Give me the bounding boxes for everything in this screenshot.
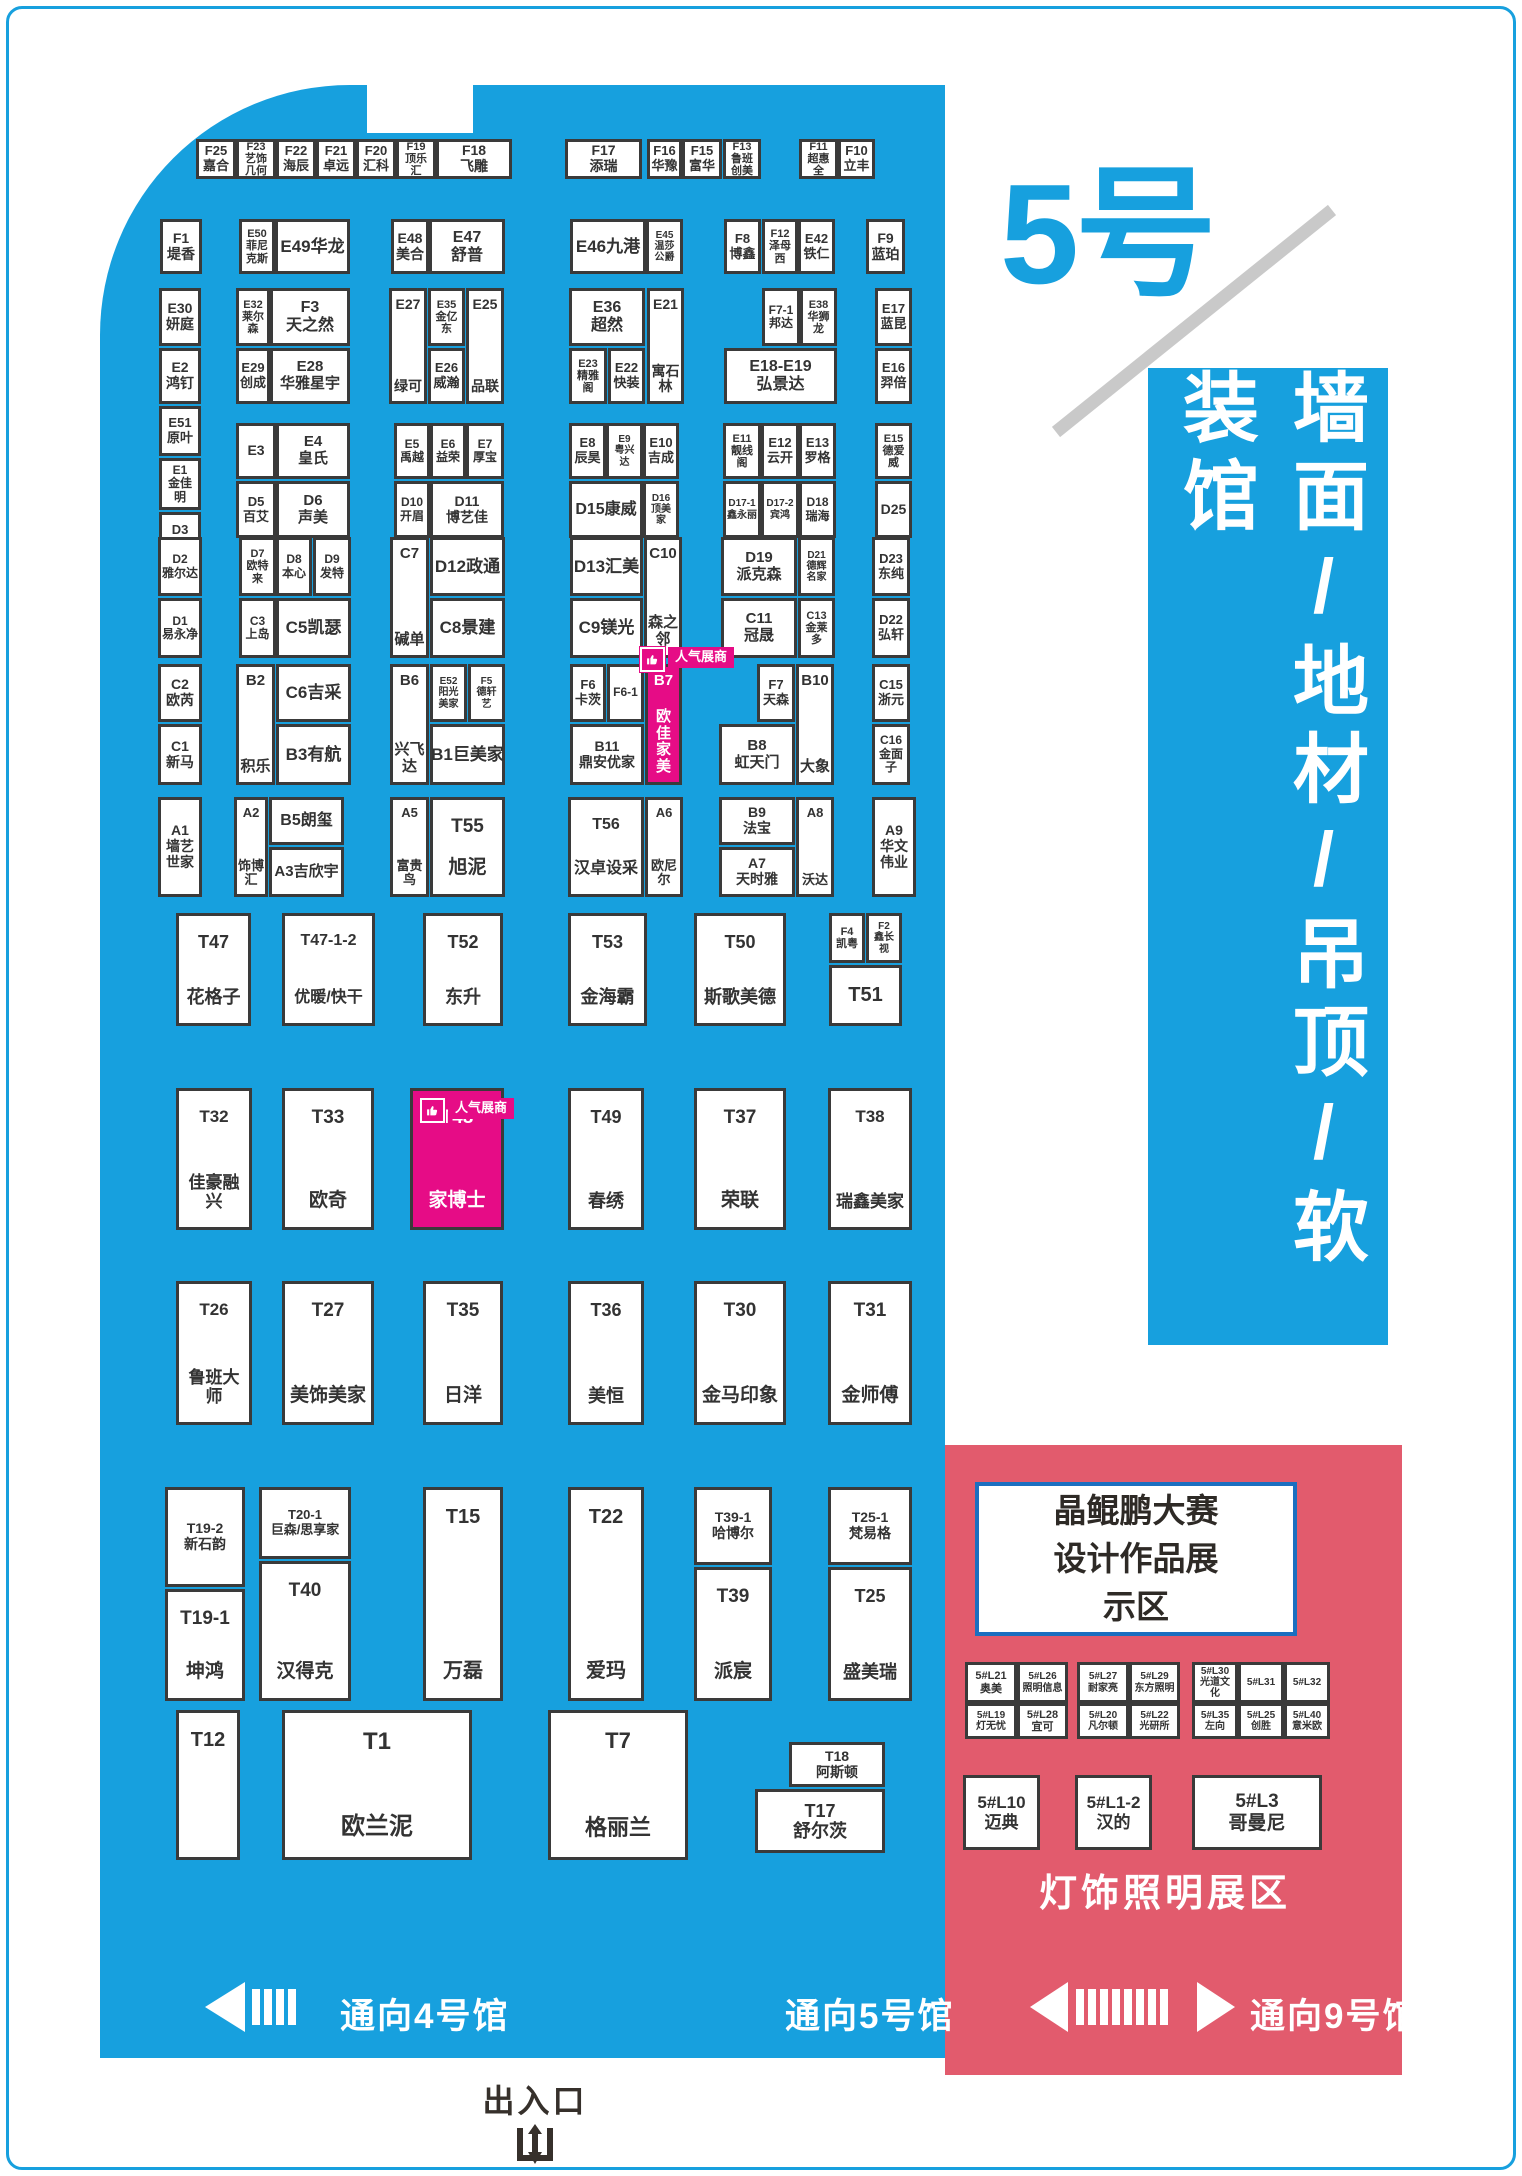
- booth-id: D15康威: [575, 501, 636, 519]
- booth-id: E42: [805, 232, 828, 247]
- hall-top-notch: [367, 80, 473, 133]
- booth-name: 德爱威: [879, 445, 908, 470]
- booth-id: 5#L29: [1140, 1671, 1168, 1682]
- booth-id: 5#L19: [977, 1710, 1005, 1721]
- booth-name: 泽母西: [766, 240, 794, 265]
- booth-A2: A2饰博汇: [234, 797, 268, 897]
- booth-A1: A1墙艺世家: [158, 797, 202, 897]
- booth-name: 光道文化: [1196, 1677, 1234, 1699]
- booth-name: 华文伟业: [876, 839, 912, 870]
- booth-name: 天之然: [286, 317, 334, 335]
- booth-F18: F18飞雕: [436, 139, 512, 179]
- booth-id: C10: [649, 546, 677, 563]
- booth-E5: E5禹越: [394, 423, 430, 479]
- booth-T19-1: T19-1坤鸿: [165, 1589, 245, 1701]
- booth-id: T18: [825, 1749, 849, 1765]
- booth-name: 辰昊: [574, 451, 600, 466]
- booth-name: 德辉名家: [802, 561, 831, 583]
- booth-name: 照明信息: [1023, 1683, 1063, 1694]
- booth-id: T38: [855, 1107, 884, 1126]
- booth-E38: E38华狮龙: [800, 288, 837, 346]
- booth-T15: T15万磊: [423, 1487, 503, 1701]
- booth-id: D19: [745, 550, 773, 567]
- booth-5#L28: 5#L28宜可: [1017, 1703, 1068, 1739]
- booth-id: D8: [286, 553, 301, 566]
- booth-name: 旭泥: [448, 857, 486, 878]
- booth-D21: D21德辉名家: [798, 537, 835, 596]
- booth-id: T33: [312, 1107, 345, 1128]
- booth-B5: B5朗玺: [269, 797, 344, 845]
- booth-B9: B9法宝: [719, 797, 795, 845]
- booth-id: B3有航: [286, 745, 342, 764]
- booth-id: 5#L25: [1247, 1710, 1275, 1721]
- booth-E4: E4皇氏: [276, 423, 350, 479]
- booth-name: 东纯: [878, 567, 904, 582]
- booth-id: F25: [205, 144, 227, 159]
- booth-name: 金佳明: [163, 477, 197, 504]
- booth-id: D7: [250, 548, 264, 560]
- booth-name: 飞雕: [460, 159, 488, 175]
- booth-id: 5#L1-2: [1087, 1793, 1141, 1812]
- booth-id: F6: [580, 678, 595, 693]
- booth-id: T39-1: [715, 1510, 752, 1526]
- booth-id: F9: [877, 231, 893, 247]
- booth-name: 寓石林: [651, 364, 680, 395]
- booth-F2: F2鑫长视: [866, 913, 902, 963]
- booth-id: C8景建: [440, 618, 496, 637]
- booth-name: 欧尼尔: [649, 859, 679, 888]
- booth-name: 新马: [166, 755, 194, 771]
- booth-name: 金海霸: [581, 987, 635, 1007]
- booth-id: T51: [848, 984, 882, 1006]
- booth-id: E28: [297, 359, 324, 376]
- entrance-label: 出入口: [455, 2076, 615, 2122]
- booth-id: F2: [878, 921, 890, 932]
- booth-name: 开眉: [400, 510, 424, 523]
- booth-id: T22: [589, 1506, 623, 1528]
- booth-5#L35: 5#L35左向: [1192, 1703, 1238, 1739]
- booth-id: T36: [590, 1300, 621, 1320]
- booth-D23: D23东纯: [872, 537, 910, 596]
- booth-id: 5#L31: [1247, 1677, 1275, 1688]
- booth-D9: D9发特: [313, 537, 351, 596]
- booth-C10: C10森之邻: [644, 537, 682, 658]
- booth-id: E50: [247, 228, 267, 240]
- booth-name: 博鑫: [729, 247, 755, 262]
- booth-id: T27: [312, 1300, 345, 1321]
- contest-line-1: 晶鲲鹏大赛: [1054, 1487, 1219, 1535]
- booth-id: E17: [882, 302, 905, 317]
- booth-D13: D13汇美: [570, 537, 643, 596]
- booth-name: 意米欧: [1292, 1721, 1322, 1732]
- booth-B8: B8虹天门: [719, 724, 795, 785]
- booth-name: 鸿钉: [166, 376, 194, 392]
- nav-to-hall4: 通向4号馆: [340, 1988, 509, 2039]
- booth-name: 弘轩: [878, 628, 904, 643]
- booth-id: B10: [801, 673, 829, 690]
- booth-5#L1-2: 5#L1-2汉的: [1075, 1775, 1152, 1850]
- booth-id: 5#L26: [1028, 1671, 1056, 1682]
- booth-name: 卓远: [323, 159, 349, 174]
- booth-id: B9: [748, 805, 766, 821]
- booth-C7: C7碱单: [390, 537, 429, 658]
- booth-E32: E32莱尔森: [236, 288, 270, 346]
- booth-name: 东升: [445, 987, 481, 1007]
- booth-name: 顶美家: [647, 504, 675, 526]
- booth-T25: T25盛美瑞: [828, 1567, 912, 1701]
- booth-F25: F25嘉合: [196, 139, 236, 179]
- booth-id: B5朗玺: [280, 812, 332, 830]
- booth-D16: D16顶美家: [643, 481, 679, 538]
- booth-name: 禹越: [400, 451, 424, 464]
- booth-id: F13: [733, 141, 752, 153]
- booth-name: 浙元: [878, 693, 904, 708]
- booth-name: 凯粤: [836, 938, 858, 950]
- booth-id: E36: [593, 299, 621, 317]
- booth-name: 凡尔顿: [1088, 1721, 1118, 1732]
- booth-name: 兴飞达: [394, 742, 425, 776]
- booth-C9: C9镁光: [570, 598, 643, 658]
- contest-line-3: 示区: [1103, 1583, 1169, 1631]
- booth-name: 墙艺世家: [162, 839, 198, 870]
- booth-E16: E16羿倍: [875, 348, 912, 404]
- booth-T51: T51: [829, 965, 902, 1026]
- booth-id: C7: [400, 546, 419, 563]
- booth-T52: T52东升: [423, 913, 503, 1026]
- booth-name: 坤鸿: [186, 1661, 224, 1682]
- booth-id: E47: [453, 229, 481, 247]
- booth-name: 汇科: [363, 159, 389, 174]
- booth-E7: E7厚宝: [466, 423, 504, 479]
- booth-id: B8: [747, 738, 766, 755]
- booth-D17-2: D17-2宾鸿: [761, 481, 799, 538]
- booth-id: D12政通: [435, 557, 500, 576]
- booth-id: T37: [724, 1107, 757, 1128]
- booth-id: C9镁光: [579, 618, 635, 637]
- booth-id: F18: [462, 143, 486, 159]
- booth-name: 靓线阁: [727, 445, 757, 470]
- booth-D12: D12政通: [430, 537, 505, 596]
- booth-id: C15: [879, 678, 903, 693]
- booth-name: 金亿东: [432, 311, 461, 336]
- booth-id: D9: [324, 553, 339, 566]
- booth-id: D17-2: [766, 498, 793, 509]
- booth-id: T40: [289, 1580, 322, 1601]
- booth-B7: B7欧佳家美人气展商: [645, 664, 682, 785]
- booth-E28: E28华雅星宇: [270, 348, 350, 404]
- booth-id: D18: [806, 496, 828, 509]
- booth-id: E18-E19: [749, 358, 811, 376]
- booth-id: T47-1-2: [300, 932, 356, 950]
- booth-name: 灯无忧: [976, 1721, 1006, 1732]
- booth-name: 汉卓设采: [574, 860, 638, 878]
- booth-name: 快装: [613, 376, 639, 391]
- booth-name: 森之邻: [648, 615, 678, 649]
- booth-id: F5: [481, 676, 493, 687]
- booth-E10: E10吉成: [643, 423, 679, 479]
- booth-5#L27: 5#L27耐家亮: [1077, 1662, 1129, 1703]
- booth-T1: T1欧兰泥: [282, 1710, 472, 1860]
- booth-name: 哥曼尼: [1228, 1813, 1285, 1834]
- booth-F23: F23艺饰几何: [236, 139, 276, 179]
- entrance-gate-icon: [512, 2122, 558, 2166]
- hall-number-title: 5号: [1000, 118, 1213, 324]
- booth-id: E45: [656, 230, 674, 241]
- booth-id: A3吉欣宇: [274, 864, 338, 881]
- booth-name: 添瑞: [590, 159, 618, 175]
- booth-5#L30: 5#L30光道文化: [1192, 1662, 1238, 1703]
- booth-name: 舒尔茨: [793, 1821, 847, 1841]
- booth-name: 创胜: [1251, 1721, 1271, 1732]
- booth-id: E27: [396, 297, 421, 313]
- booth-T18: T18阿斯顿: [789, 1742, 885, 1787]
- booth-id: 5#L22: [1140, 1710, 1168, 1721]
- booth-name: 光研所: [1140, 1721, 1170, 1732]
- booth-id: T55: [451, 816, 484, 837]
- booth-F11: F11超惠全: [799, 139, 838, 179]
- booth-id: T7: [605, 1729, 631, 1754]
- booth-id: F20: [365, 144, 387, 159]
- booth-id: E6: [441, 438, 456, 451]
- booth-id: T39: [717, 1586, 750, 1607]
- booth-id: C3: [250, 615, 265, 628]
- booth-name: 温莎公爵: [650, 241, 679, 263]
- booth-name: 春绣: [588, 1191, 624, 1211]
- booth-id: 5#L21: [975, 1670, 1006, 1682]
- booth-name: 日洋: [444, 1385, 482, 1406]
- booth-E45: E45温莎公爵: [646, 219, 683, 274]
- booth-T22: T22爱玛: [568, 1487, 644, 1701]
- booth-id: E16: [882, 361, 905, 376]
- booth-F6-1: F6-1: [607, 664, 644, 722]
- booth-id: 5#L27: [1089, 1671, 1117, 1682]
- booth-name: 花格子: [187, 987, 241, 1007]
- booth-name: 声美: [298, 510, 328, 527]
- booth-id: T26: [199, 1300, 228, 1319]
- booth-F15: F15富华: [682, 139, 722, 179]
- booth-id: T49: [590, 1107, 621, 1127]
- booth-name: 新石韵: [184, 1537, 226, 1553]
- booth-name: 万磊: [443, 1660, 483, 1682]
- booth-name: 嘉合: [203, 159, 229, 174]
- booth-id: E49华龙: [280, 237, 344, 256]
- booth-C5: C5凯瑟: [276, 598, 351, 658]
- booth-E52: E52阳光美家: [430, 664, 467, 722]
- booth-C2: C2欧芮: [158, 664, 202, 722]
- booth-id: T20-1: [288, 1508, 322, 1523]
- booth-id: T30: [724, 1300, 757, 1321]
- booth-E36: E36超然: [569, 288, 645, 346]
- booth-name: 原叶: [167, 431, 193, 446]
- entrance: 出入口: [455, 2076, 615, 2171]
- booth-C8: C8景建: [430, 598, 505, 658]
- booth-A5: A5富贵鸟: [390, 797, 429, 897]
- booth-E9: E9粤兴达: [606, 423, 643, 479]
- booth-F7-1: F7-1邦达: [762, 288, 800, 346]
- booth-name: 冠晟: [744, 628, 774, 645]
- booth-5#L10: 5#L10迈典: [963, 1775, 1040, 1850]
- booth-T39: T39派宸: [694, 1567, 772, 1701]
- booth-id: E5: [405, 438, 420, 451]
- left-arrow-icon: [205, 1982, 330, 2032]
- booth-D25: D25: [875, 481, 912, 538]
- booth-id: F21: [325, 144, 347, 159]
- booth-id: F10: [845, 144, 867, 159]
- booth-E3: E3: [236, 423, 276, 479]
- booth-id: 5#L32: [1293, 1677, 1321, 1688]
- booth-id: T50: [724, 932, 755, 952]
- booth-F7: F7天森: [757, 664, 795, 722]
- booth-name: 盛美瑞: [843, 1662, 897, 1682]
- booth-F16: F16华豫: [647, 139, 682, 179]
- booth-id: F22: [285, 144, 307, 159]
- booth-id: E25: [473, 297, 498, 313]
- booth-E21: E21寓石林: [647, 288, 684, 404]
- booth-id: T17: [804, 1801, 835, 1821]
- booth-name: 美饰美家: [290, 1385, 366, 1406]
- booth-T19-2: T19-2新石韵: [165, 1487, 245, 1587]
- booth-id: D6: [303, 493, 322, 510]
- booth-D7: D7欧特来: [239, 537, 276, 596]
- booth-E18-E19: E18-E19弘景达: [724, 348, 837, 404]
- booth-id: F11: [809, 141, 827, 153]
- booth-id: E7: [478, 438, 493, 451]
- booth-id: B11: [595, 739, 620, 755]
- booth-id: F17: [591, 143, 615, 159]
- booth-name: 华狮龙: [804, 311, 833, 336]
- booth-id: E2: [171, 360, 188, 376]
- booth-T36: T36美恒: [568, 1281, 644, 1425]
- booth-name: 梵易格: [849, 1526, 891, 1542]
- booth-name: 品联: [471, 379, 499, 395]
- booth-name: 法宝: [743, 821, 771, 837]
- booth-id: F8: [735, 232, 750, 247]
- booth-id: B1巨美家: [431, 745, 504, 764]
- booth-id: C6吉采: [286, 683, 342, 702]
- booth-name: 美合: [396, 247, 424, 263]
- booth-id: F6-1: [613, 686, 638, 699]
- booth-id: E46九港: [576, 237, 640, 256]
- booth-id: C5凯瑟: [286, 618, 342, 637]
- booth-name: 阳光美家: [434, 687, 463, 709]
- booth-name: 汉得克: [276, 1661, 333, 1682]
- booth-E12: E12云开: [761, 423, 799, 479]
- booth-F1: F1堤香: [160, 219, 202, 274]
- booth-E25: E25品联: [466, 288, 504, 404]
- booth-name: 巨森/思享家: [271, 1523, 340, 1538]
- booth-F20: F20汇科: [356, 139, 396, 179]
- booth-name: 奥美: [980, 1683, 1002, 1695]
- booth-T33: T33欧奇: [282, 1088, 374, 1230]
- booth-B11: B11鼎安优家: [570, 724, 644, 785]
- booth-name: 爱玛: [586, 1660, 626, 1682]
- booth-E29: E29创成: [236, 348, 270, 404]
- booth-B10: B10大象: [796, 664, 834, 785]
- booth-id: E4: [304, 434, 322, 451]
- booth-name: 富贵鸟: [394, 859, 425, 888]
- booth-T55: T55旭泥: [430, 797, 505, 897]
- design-contest-box: 晶鲲鹏大赛 设计作品展 示区: [975, 1482, 1297, 1636]
- booth-id: T32: [199, 1107, 228, 1126]
- booth-id: F3: [301, 299, 320, 317]
- booth-F12: F12泽母西: [762, 219, 798, 274]
- booth-5#L22: 5#L22光研所: [1129, 1703, 1180, 1739]
- booth-name: 妍庭: [166, 317, 194, 333]
- booth-D22: D22弘轩: [872, 598, 910, 658]
- booth-name: 海辰: [283, 159, 309, 174]
- booth-name: 美恒: [588, 1386, 624, 1406]
- booth-id: 5#L30: [1201, 1666, 1229, 1677]
- booth-E26: E26威瀚: [428, 348, 465, 404]
- booth-id: F19: [407, 141, 426, 153]
- popular-exhibitor-badge: 人气展商: [640, 647, 734, 672]
- booth-B1: B1巨美家: [430, 724, 505, 785]
- booth-D11: D11博艺佳: [430, 481, 504, 538]
- booth-T38: T38瑞鑫美家: [828, 1088, 912, 1230]
- booth-T27: T27美饰美家: [282, 1281, 374, 1425]
- booth-id: C16: [880, 734, 902, 747]
- booth-T20-1: T20-1巨森/思享家: [259, 1487, 351, 1559]
- booth-T32: T32佳豪融兴: [176, 1088, 252, 1230]
- booth-id: D16: [652, 493, 670, 504]
- booth-name: 汉的: [1097, 1813, 1131, 1832]
- booth-D15: D15康威: [569, 481, 643, 538]
- booth-name: 大象: [800, 759, 830, 776]
- booth-E15: E15德爱威: [875, 423, 912, 479]
- booth-id: F15: [691, 144, 713, 159]
- booth-T56: T56汉卓设采: [568, 797, 644, 897]
- booth-E27: E27绿可: [389, 288, 427, 404]
- booth-id: B2: [246, 673, 265, 690]
- booth-id: T53: [592, 932, 623, 952]
- booth-name: 派宸: [714, 1661, 752, 1682]
- booth-5#L31: 5#L31: [1238, 1662, 1284, 1703]
- booth-id: F23: [247, 141, 266, 153]
- booth-E46: E46九港: [570, 219, 646, 274]
- booth-id: C1: [171, 739, 189, 755]
- booth-name: 罗格: [804, 451, 830, 466]
- booth-id: T52: [447, 932, 478, 952]
- booth-id: D5: [248, 495, 265, 510]
- booth-T26: T26鲁班大师: [176, 1281, 252, 1425]
- booth-name: 精雅阁: [573, 370, 603, 395]
- booth-id: E12: [768, 436, 791, 451]
- booth-D5: D5百艾: [236, 481, 276, 538]
- booth-C15: C15浙元: [872, 664, 910, 722]
- booth-T17: T17舒尔茨: [755, 1789, 885, 1853]
- booth-id: T56: [592, 816, 620, 834]
- booth-F22: F22海辰: [276, 139, 316, 179]
- booth-name: 卡茨: [575, 693, 601, 708]
- booth-id: E15: [884, 433, 904, 445]
- booth-name: 欧芮: [166, 693, 194, 709]
- booth-name: 华雅星宇: [280, 376, 340, 393]
- booth-name: 斯歌美德: [704, 987, 776, 1007]
- booth-5#L26: 5#L26照明信息: [1017, 1662, 1068, 1703]
- booth-id: E32: [243, 299, 263, 311]
- booth-id: F7: [768, 678, 783, 693]
- booth-name: 蓝珀: [872, 247, 900, 263]
- booth-name: 舒普: [451, 247, 483, 265]
- booth-E49: E49华龙: [275, 219, 350, 274]
- booth-id: D23: [879, 552, 903, 567]
- booth-5#L29: 5#L29东方照明: [1129, 1662, 1180, 1703]
- contest-line-2: 设计作品展: [1054, 1535, 1219, 1583]
- booth-T35: T35日洋: [423, 1281, 503, 1425]
- booth-name: 发特: [320, 567, 344, 580]
- booth-T49: T49春绣: [568, 1088, 644, 1230]
- booth-name: 鲁班创美: [727, 153, 757, 178]
